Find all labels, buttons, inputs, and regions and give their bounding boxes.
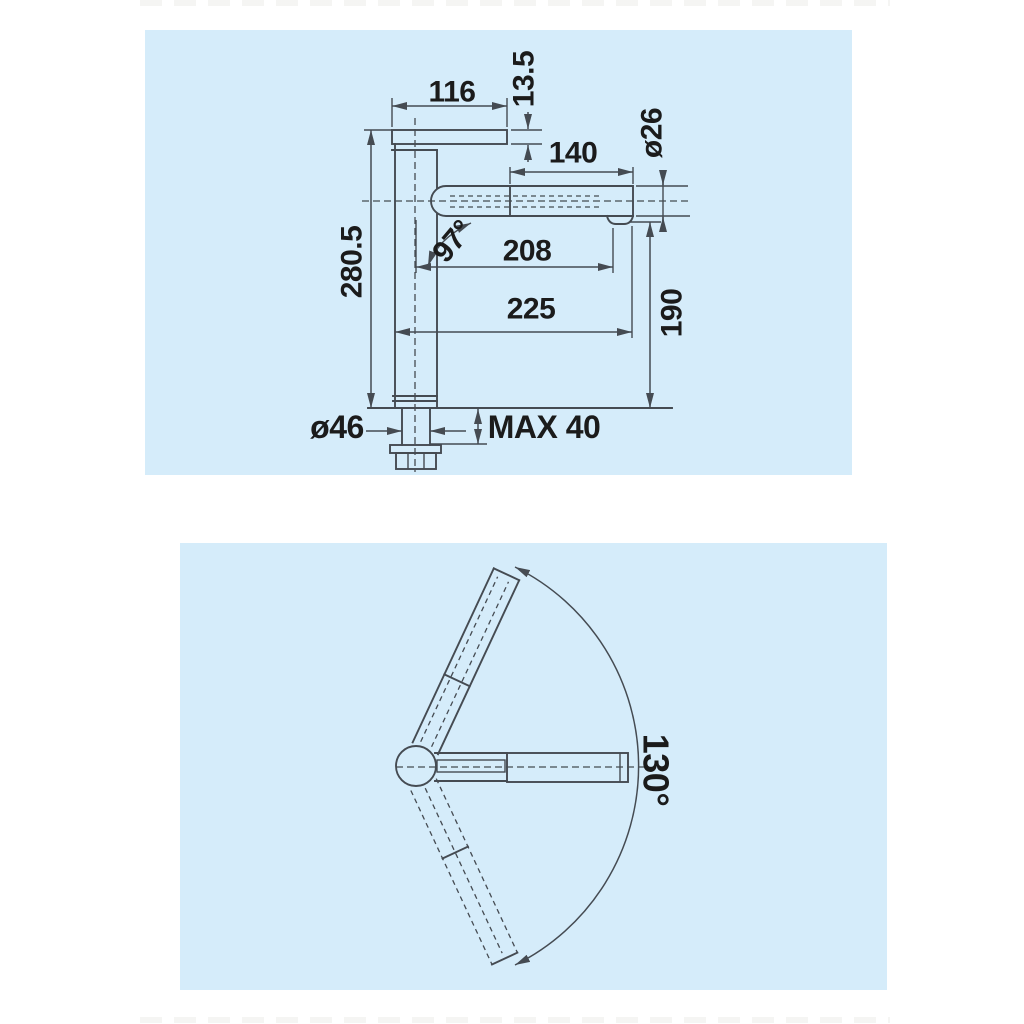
dim-130-label: 130° xyxy=(635,734,676,806)
dim-190-label: 190 xyxy=(656,289,689,338)
dim-280.5-label: 280.5 xyxy=(336,226,369,299)
dim-225-label: 225 xyxy=(507,293,556,326)
spec-sheet: 116 13.5 140 xyxy=(0,0,1024,1024)
technical-drawing-svg: 116 13.5 140 xyxy=(0,0,1024,1024)
dim-o46-label: ø46 xyxy=(310,409,364,445)
dim-140-label: 140 xyxy=(549,137,598,170)
dim-116-label: 116 xyxy=(429,76,476,109)
dim-208-label: 208 xyxy=(503,235,552,268)
dim-max-deck: MAX 40 xyxy=(478,409,600,445)
dim-13.5-label: 13.5 xyxy=(508,51,541,107)
dim-max40-label: MAX 40 xyxy=(488,409,601,445)
top-view-panel: 130° xyxy=(180,543,887,990)
dim-o26-label: ø26 xyxy=(636,108,669,158)
side-view-panel: 116 13.5 140 xyxy=(145,30,852,475)
